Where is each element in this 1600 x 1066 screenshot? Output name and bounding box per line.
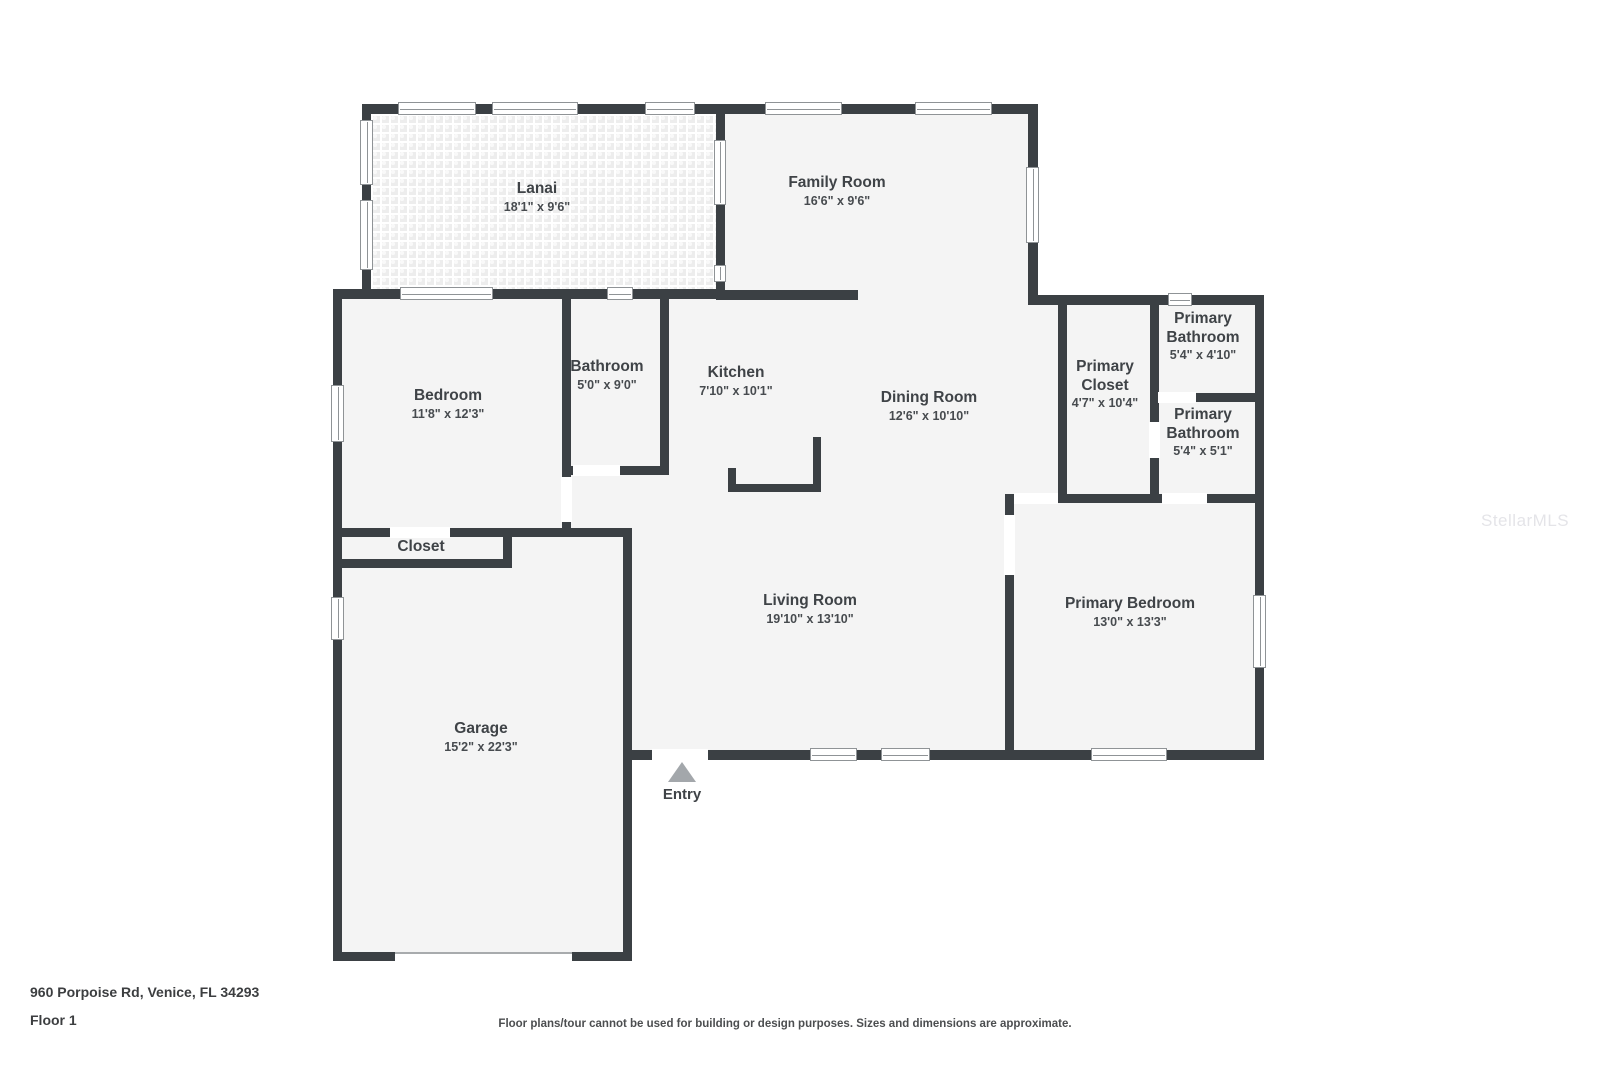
room-dims: 4'7" x 10'4": [1064, 396, 1146, 411]
wall: [1028, 104, 1038, 167]
room-label-bedroom: Bedroom 11'8" x 12'3": [348, 387, 548, 422]
wall: [842, 104, 915, 114]
window: [1253, 595, 1266, 668]
kitchen-counter: [728, 484, 821, 492]
room-dims: 16'6" x 9'6": [727, 194, 947, 209]
entry-arrow-icon: [668, 762, 696, 782]
room-label-family-room: Family Room 16'6" x 9'6": [727, 174, 947, 209]
window: [765, 102, 842, 115]
wall: [333, 952, 395, 961]
window: [331, 385, 344, 442]
garage-door-opening: [395, 952, 572, 961]
kitchen-counter: [728, 468, 736, 492]
window: [915, 102, 992, 115]
wall: [578, 104, 645, 114]
wall: [333, 289, 342, 385]
room-dims: 5'4" x 5'1": [1156, 444, 1251, 459]
room-area-family-room: [725, 114, 1028, 304]
wall: [633, 289, 716, 299]
window: [331, 597, 344, 640]
wall: [716, 205, 725, 265]
door-opening: [573, 465, 620, 476]
window: [400, 287, 493, 300]
window: [714, 265, 726, 282]
room-name: Bathroom: [547, 358, 667, 377]
room-dims: 5'0" x 9'0": [547, 378, 667, 393]
watermark: StellarMLS: [1481, 511, 1569, 531]
room-label-living-room: Living Room 19'10" x 13'10": [700, 592, 920, 627]
room-dims: 13'0" x 13'3": [1020, 615, 1240, 630]
room-name: Primary Bathroom: [1156, 310, 1251, 347]
window: [398, 102, 476, 115]
window: [360, 120, 373, 185]
wall: [493, 289, 607, 299]
wall: [333, 559, 512, 568]
window: [810, 748, 857, 761]
room-name: Primary Bedroom: [1020, 595, 1240, 614]
door-opening: [1004, 515, 1015, 575]
door-opening: [561, 477, 572, 522]
room-label-kitchen: Kitchen 7'10" x 10'1": [656, 364, 816, 399]
wall: [716, 104, 725, 140]
wall: [333, 528, 623, 537]
door-opening: [1162, 493, 1207, 504]
room-label-primary-bathroom-2: Primary Bathroom 5'4" x 5'1": [1156, 406, 1251, 459]
wall: [1255, 295, 1264, 595]
room-label-lanai: Lanai 18'1" x 9'6": [437, 180, 637, 215]
window: [714, 140, 726, 205]
room-name: Dining Room: [829, 389, 1029, 408]
room-dims: 12'6" x 10'10": [829, 409, 1029, 424]
room-dims: 5'4" x 4'10": [1156, 348, 1251, 363]
wall: [333, 640, 342, 961]
floor-label: Floor 1: [30, 1012, 77, 1028]
window: [607, 287, 633, 300]
door-opening: [1014, 493, 1058, 504]
room-name: Kitchen: [656, 364, 816, 383]
room-label-primary-bedroom: Primary Bedroom 13'0" x 13'3": [1020, 595, 1240, 630]
room-dims: 7'10" x 10'1": [656, 384, 816, 399]
room-label-closet: Closet: [361, 538, 481, 557]
wall: [362, 104, 371, 120]
window: [1168, 293, 1192, 306]
wall: [333, 442, 342, 597]
wall: [1192, 295, 1264, 305]
room-label-primary-closet: Primary Closet 4'7" x 10'4": [1064, 358, 1146, 411]
window: [645, 102, 695, 115]
wall: [362, 185, 371, 200]
room-dims: 15'2" x 22'3": [381, 740, 581, 755]
wall: [695, 104, 765, 114]
room-name: Lanai: [437, 180, 637, 199]
door-opening: [390, 527, 450, 538]
room-name: Family Room: [727, 174, 947, 193]
room-label-garage: Garage 15'2" x 22'3": [381, 720, 581, 755]
address-text: 960 Porpoise Rd, Venice, FL 34293: [30, 984, 259, 1000]
room-dims: 19'10" x 13'10": [700, 612, 920, 627]
wall: [716, 290, 858, 300]
room-name: Living Room: [700, 592, 920, 611]
entry-door-opening: [652, 749, 708, 761]
disclaimer-text: Floor plans/tour cannot be used for buil…: [498, 1018, 1071, 1030]
room-label-dining-room: Dining Room 12'6" x 10'10": [829, 389, 1029, 424]
room-dims: 18'1" x 9'6": [437, 200, 637, 215]
wall: [476, 104, 492, 114]
room-name: Garage: [381, 720, 581, 739]
window: [1026, 167, 1039, 243]
wall: [1255, 668, 1264, 760]
room-name: Closet: [361, 538, 481, 557]
wall: [572, 952, 632, 961]
room-dims: 11'8" x 12'3": [348, 407, 548, 422]
wall: [623, 528, 632, 961]
room-label-bathroom: Bathroom 5'0" x 9'0": [547, 358, 667, 393]
room-name: Primary Closet: [1064, 358, 1146, 395]
wall: [1028, 295, 1168, 305]
room-name: Bedroom: [348, 387, 548, 406]
door-opening: [1158, 392, 1196, 403]
window: [360, 200, 373, 270]
entry-label: Entry: [663, 786, 701, 803]
window: [881, 748, 930, 761]
window: [1091, 748, 1167, 761]
wall: [333, 289, 400, 299]
floor-plan-canvas: Entry Lanai 18'1" x 9'6" Family Room 16'…: [0, 0, 1600, 1066]
room-label-primary-bathroom-1: Primary Bathroom 5'4" x 4'10": [1156, 310, 1251, 363]
wall: [503, 537, 512, 568]
window: [492, 102, 578, 115]
room-name: Primary Bathroom: [1156, 406, 1251, 443]
wall: [627, 750, 1264, 760]
